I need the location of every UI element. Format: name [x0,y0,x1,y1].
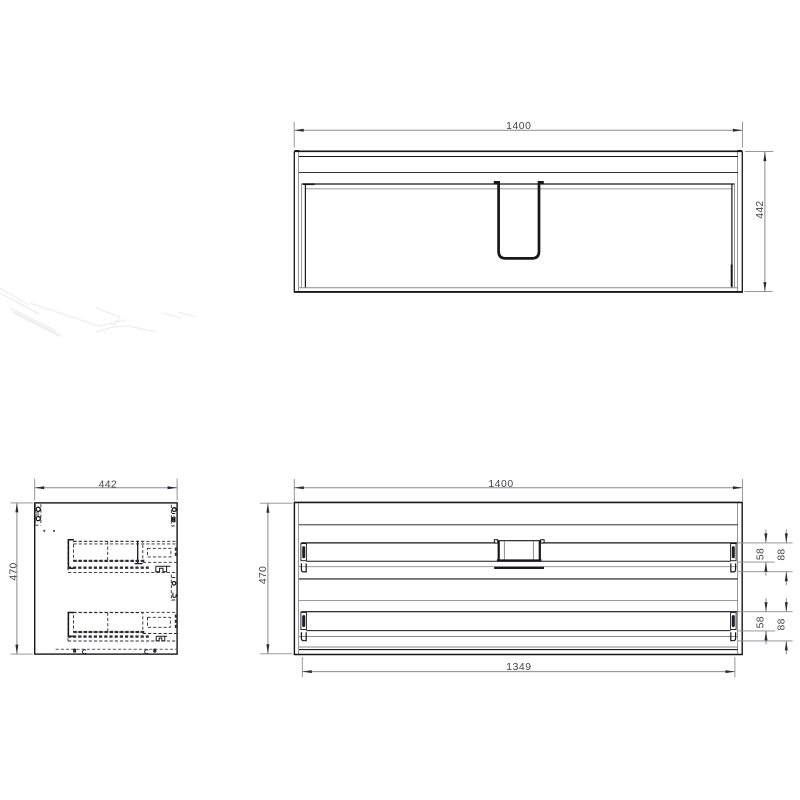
svg-text:58: 58 [756,548,767,560]
svg-text:88: 88 [777,549,788,561]
svg-text:58: 58 [756,616,767,628]
svg-text:1400: 1400 [506,121,531,132]
svg-text:1400: 1400 [488,479,513,490]
svg-text:470: 470 [8,562,19,580]
svg-text:442: 442 [755,200,766,218]
svg-text:88: 88 [777,618,788,630]
svg-text:442: 442 [99,479,117,490]
svg-text:470: 470 [258,566,269,584]
svg-text:1349: 1349 [506,662,531,673]
